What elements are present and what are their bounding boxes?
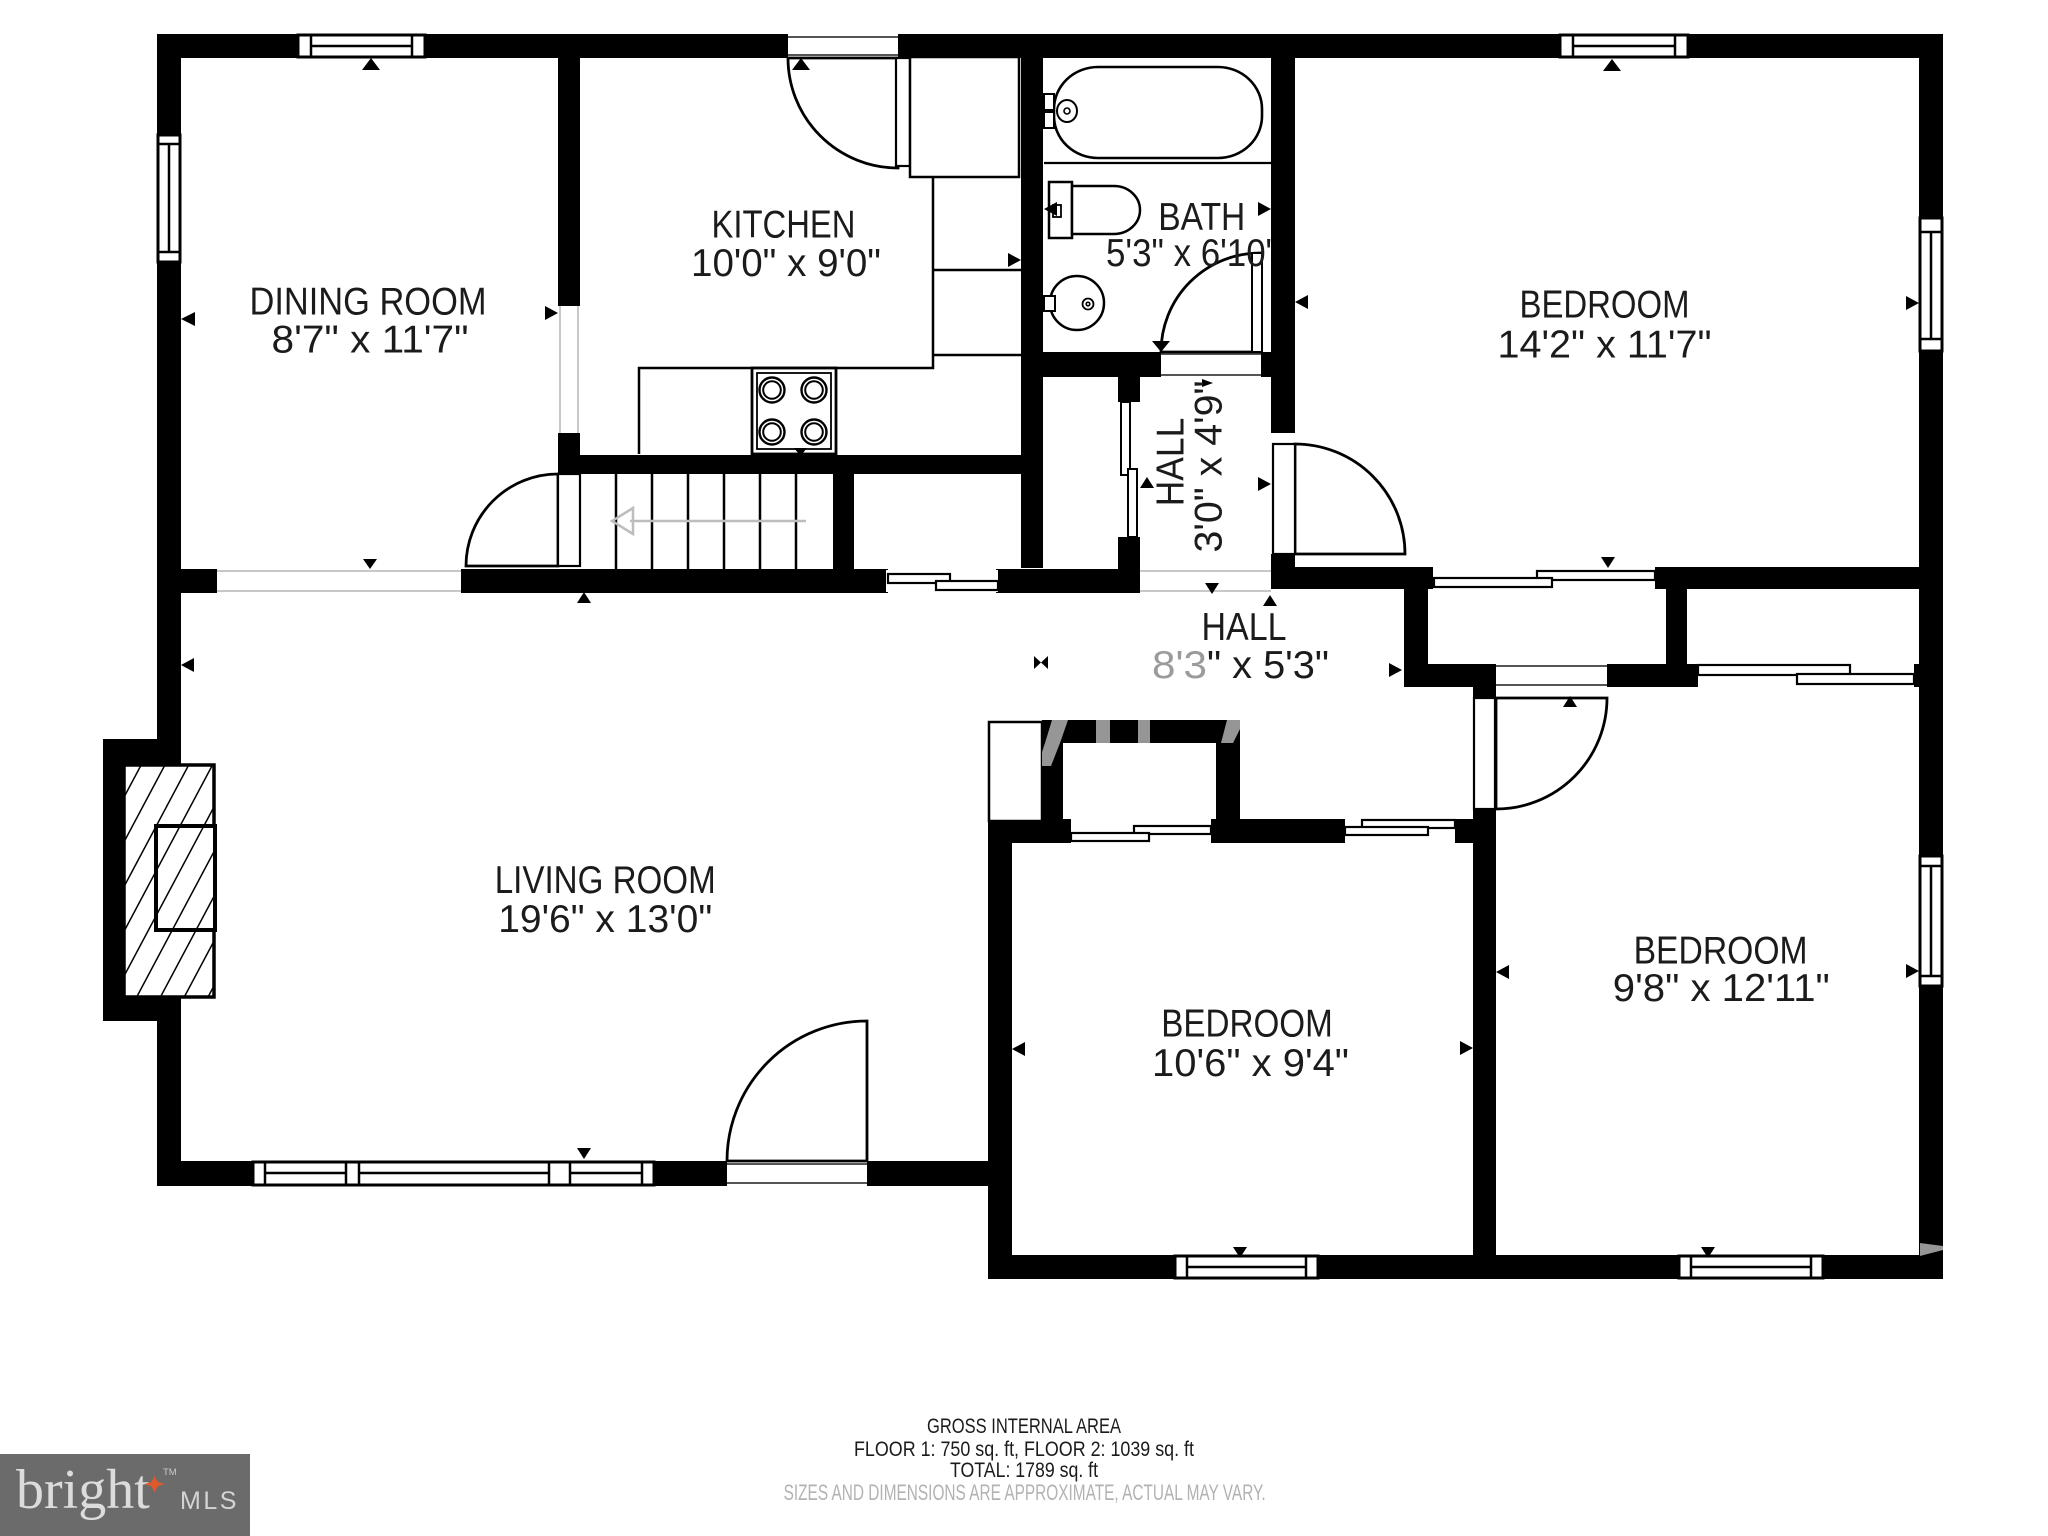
svg-text:TM: TM: [163, 1467, 177, 1478]
svg-text:MLS: MLS: [180, 1487, 239, 1515]
svg-text:LIVING ROOM: LIVING ROOM: [495, 859, 716, 902]
svg-text:3'0" x 4'9": 3'0" x 4'9": [1188, 381, 1231, 553]
svg-text:10'0" x 9'0": 10'0" x 9'0": [691, 242, 881, 285]
svg-text:19'6" x 13'0": 19'6" x 13'0": [498, 898, 712, 941]
svg-text:5'3" x 6'10": 5'3" x 6'10": [1106, 232, 1278, 275]
svg-text:8'7" x 11'7": 8'7" x 11'7": [272, 319, 469, 362]
svg-text:TOTAL: 1789 sq. ft: TOTAL: 1789 sq. ft: [950, 1458, 1098, 1482]
svg-text:" x 5'3": " x 5'3": [1207, 644, 1329, 687]
svg-text:BEDROOM: BEDROOM: [1520, 283, 1690, 326]
svg-text:14'2" x 11'7": 14'2" x 11'7": [1498, 324, 1712, 367]
svg-text:bright: bright: [16, 1459, 150, 1521]
svg-text:BEDROOM: BEDROOM: [1161, 1002, 1333, 1045]
svg-text:HALL: HALL: [1149, 418, 1192, 507]
svg-text:DINING ROOM: DINING ROOM: [250, 281, 487, 324]
svg-text:8'3: 8'3: [1152, 644, 1207, 687]
svg-text:9'8" x 12'11": 9'8" x 12'11": [1613, 967, 1830, 1010]
svg-text:KITCHEN: KITCHEN: [712, 204, 856, 247]
svg-text:HALL: HALL: [1202, 606, 1287, 649]
svg-text:BEDROOM: BEDROOM: [1634, 929, 1808, 972]
svg-text:SIZES AND DIMENSIONS ARE APPRO: SIZES AND DIMENSIONS ARE APPROXIMATE, AC…: [784, 1480, 1266, 1505]
svg-text:10'6" x 9'4": 10'6" x 9'4": [1152, 1042, 1349, 1085]
svg-text:GROSS INTERNAL AREA: GROSS INTERNAL AREA: [927, 1414, 1121, 1438]
